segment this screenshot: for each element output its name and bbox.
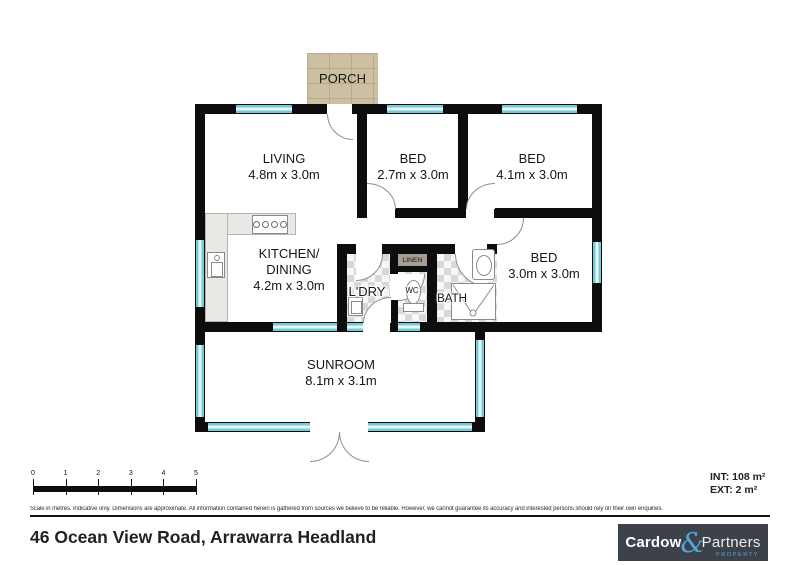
wall-laundry-top-a <box>337 244 356 254</box>
window-kitchen <box>196 240 204 307</box>
scale-tick-5: 5 <box>190 470 202 477</box>
internal-area: INT: 108 m² <box>710 471 765 484</box>
wc-label: WC <box>405 283 418 299</box>
laundry-sunroom-opening <box>363 322 390 332</box>
window-sunroom-right <box>476 340 484 417</box>
bed2-label: BED4.1m x 3.0m <box>496 151 568 183</box>
floorplan-page: PORCH <box>0 0 800 565</box>
window-living <box>236 105 292 113</box>
stove-icon <box>252 215 288 234</box>
bed1-label: BED2.7m x 3.0m <box>377 151 449 183</box>
property-address: 46 Ocean View Road, Arrawarra Headland <box>30 527 376 548</box>
scale-tick-4: 4 <box>157 470 169 477</box>
sunroom-door-opening <box>310 422 368 432</box>
laundry-label: L'DRY <box>349 284 386 300</box>
window-sunroom-bottom-left <box>208 423 310 431</box>
wall-hall-b <box>494 208 602 218</box>
logo-word-partners: Partners <box>702 534 761 551</box>
window-bed3 <box>593 242 601 283</box>
window-bed2 <box>502 105 577 113</box>
scale-tick-0: 0 <box>27 470 39 477</box>
front-door-opening <box>327 104 352 114</box>
sunroom-door-arc-right <box>339 432 369 462</box>
window-wc <box>398 323 420 331</box>
sunroom-door-arc-left <box>310 432 340 462</box>
logo-tagline: PROPERTY <box>716 552 759 558</box>
wall-hall-a <box>395 208 466 218</box>
scale-tick-3: 3 <box>125 470 137 477</box>
external-area: EXT: 2 m² <box>710 484 765 497</box>
scale-tick-1: 1 <box>60 470 72 477</box>
wall-living-bed1 <box>357 114 367 218</box>
wall-laundry-wc-b <box>390 300 398 322</box>
bath-basin-icon <box>472 249 495 280</box>
kitchen-label: KITCHEN/DINING4.2m x 3.0m <box>253 246 325 294</box>
wall-laundry-wc-a <box>390 254 398 274</box>
bed2-door-opening <box>466 208 494 218</box>
bath-label: BATH <box>437 291 467 307</box>
wall-wc-bath <box>427 254 437 322</box>
window-kitchen-sunroom <box>273 323 337 331</box>
window-laundry <box>347 323 363 331</box>
living-label: LIVING4.8m x 3.0m <box>248 151 320 183</box>
divider-line <box>30 515 770 517</box>
bed3-label: BED3.0m x 3.0m <box>508 250 580 282</box>
porch-area: PORCH <box>307 53 378 104</box>
area-summary: INT: 108 m² EXT: 2 m² <box>710 471 765 497</box>
wall-laundry-top-b <box>382 244 455 254</box>
porch-label: PORCH <box>319 71 366 86</box>
window-bed1 <box>387 105 443 113</box>
disclaimer-text: Scale in metres. Indicative only. Dimens… <box>30 506 770 512</box>
agency-logo: Cardow & Partners PROPERTY <box>618 524 768 561</box>
window-sunroom-left <box>196 345 204 417</box>
logo-word-cardow: Cardow <box>625 534 681 551</box>
toilet-tank-icon <box>403 303 424 312</box>
scale-tick-2: 2 <box>92 470 104 477</box>
wall-laundry-left <box>337 244 347 322</box>
linen-label: LINEN <box>402 257 422 264</box>
scale-bar-rule <box>33 486 196 492</box>
sunroom-label: SUNROOM8.1m x 3.1m <box>305 357 377 389</box>
linen-closet: LINEN <box>398 254 427 266</box>
kitchen-sink-icon <box>207 252 225 278</box>
bed1-door-opening <box>367 208 395 218</box>
scale-bar: 0 1 2 3 4 5 <box>30 470 202 498</box>
window-sunroom-bottom-right <box>368 423 472 431</box>
